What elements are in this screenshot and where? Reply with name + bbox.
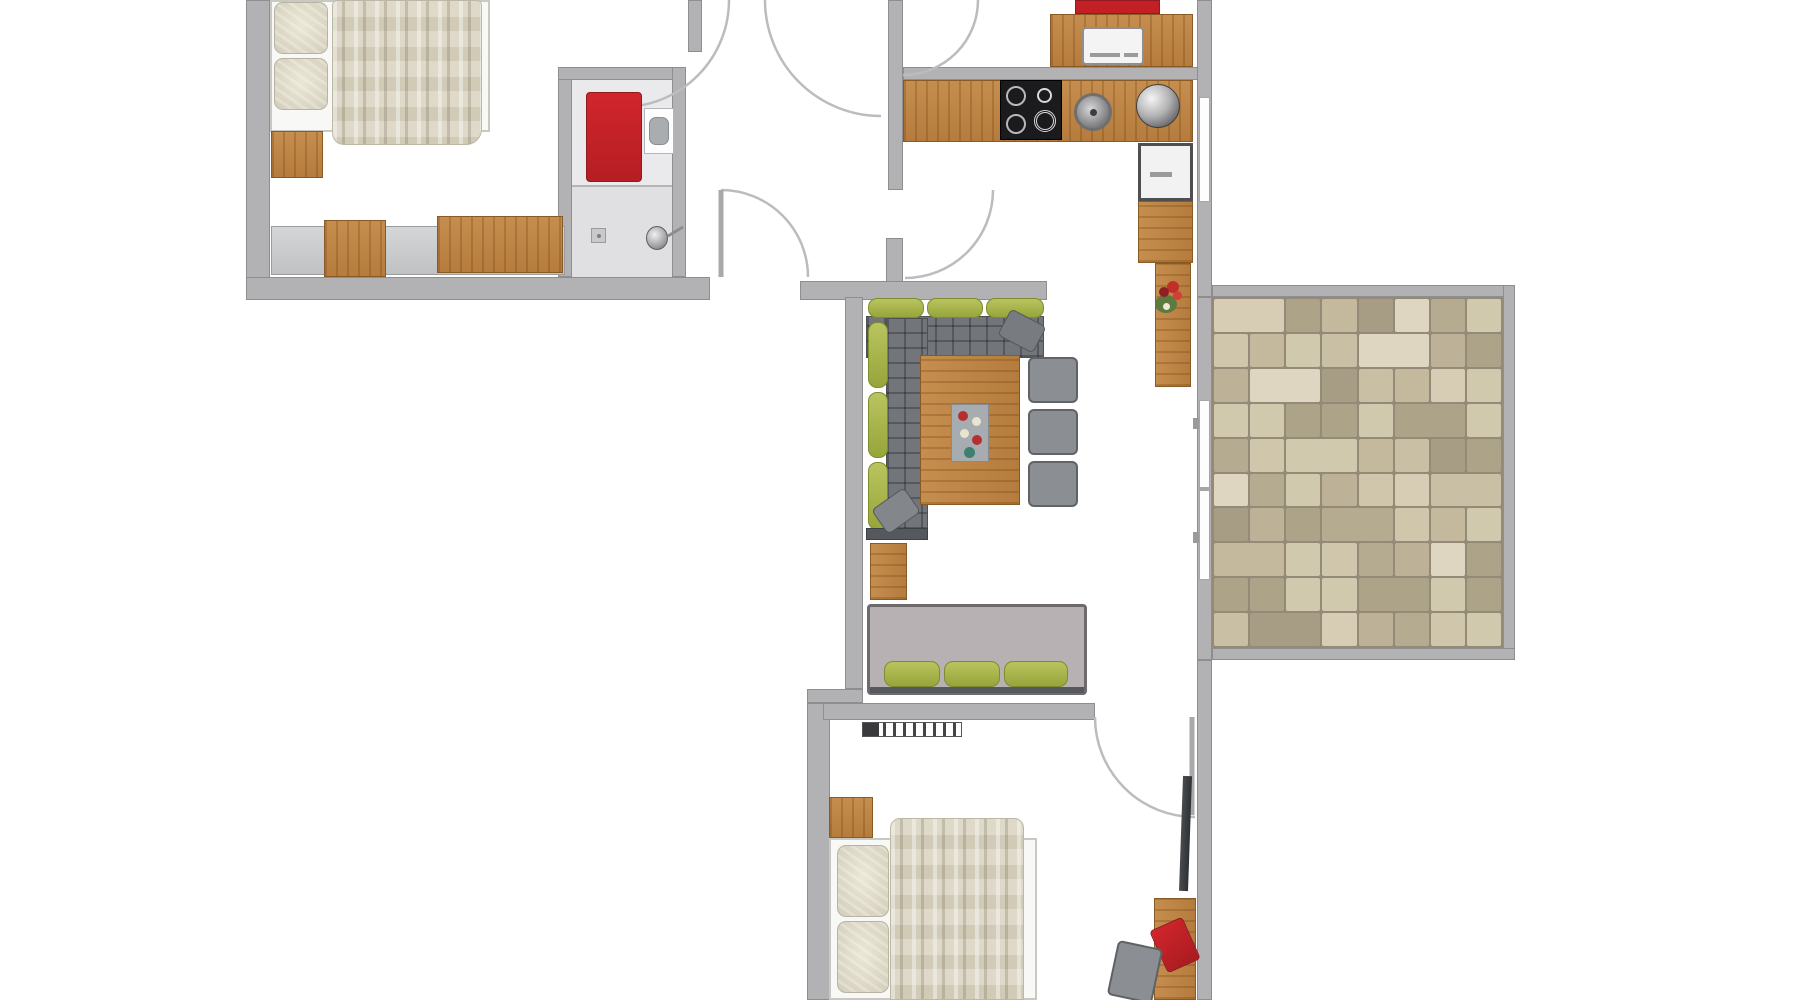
shower-head [646,226,668,250]
stone-tile [1214,508,1248,541]
wall-tv [1179,776,1192,891]
stone-tile [1467,334,1501,367]
wall-bedroom1-left [246,0,270,300]
bedroom2-pillow [837,845,889,917]
sliding-door-divider [1199,487,1210,491]
wall-right-lower [1197,660,1212,1000]
bedroom1-pillow [274,58,328,110]
bedroom2-duvet [890,818,1024,1000]
stone-tile [1431,369,1465,402]
stone-tile [1395,613,1429,646]
stone-tile [1250,613,1320,646]
stone-tile [1286,578,1320,611]
bedroom1-chair [324,220,386,277]
kitchen-counter-column [1138,201,1193,263]
wall-bedroom1-bottom [246,277,710,300]
wall-bedroom2-top [823,703,1095,720]
stone-tile [1431,543,1465,576]
stone-tile [1322,543,1356,576]
burner [1037,88,1052,103]
wall-jog [807,689,863,703]
kitchen-red-fridge [1075,0,1160,14]
dishwasher [1138,143,1193,201]
bedroom1-nightstand [271,131,323,178]
stone-tiles [1212,297,1503,648]
wall-kitchen-top [903,67,1212,80]
stone-tile [1359,474,1393,507]
flower-pot [1153,279,1189,317]
stone-tile [1250,404,1284,437]
stone-tile [1214,334,1248,367]
stone-tile [1359,543,1393,576]
sofa-cushion [868,322,888,388]
stone-tile [1214,439,1248,472]
stone-tile [1395,508,1429,541]
stone-tile [1214,299,1284,332]
stone-tile [1322,334,1356,367]
wall-hall-right-lower [886,238,903,283]
burner [1034,110,1056,132]
door-arc [903,0,978,75]
stone-tile [1214,474,1248,507]
sofa-cushion [944,661,1000,687]
stone-tile [1467,543,1501,576]
stone-tile [1395,474,1429,507]
stone-tile [1359,369,1393,402]
wall-bedroom2-left [807,703,830,1000]
door-handle [1193,418,1199,429]
bathroom-red-cabinet [586,92,642,182]
floor-plan [0,0,1800,1000]
sofa-cushion [868,298,924,318]
table-decoration [951,404,989,462]
stone-tile [1431,613,1465,646]
stone-tile [1359,299,1393,332]
stone-tile [1467,299,1501,332]
stone-tile [1431,439,1465,472]
stone-tile [1395,404,1465,437]
bedroom2-pillow [837,921,889,993]
stone-tile [1359,578,1429,611]
shower-drain [591,228,606,243]
stone-tile [1467,578,1501,611]
kitchen-window [1199,97,1210,202]
kitchen-sink [1074,93,1112,131]
bedroom1-pillow [274,2,328,54]
stone-tile [1467,508,1501,541]
stone-tile [1467,439,1501,472]
stone-tile [1214,613,1248,646]
sofa-cushion [1004,661,1068,687]
wall-bathroom-right [672,67,686,277]
dining-chair [1028,461,1078,507]
stone-tile [1431,299,1465,332]
stone-tile [1431,578,1465,611]
stone-tile [1467,369,1501,402]
stone-tile [1322,578,1356,611]
bedroom1-desk [437,216,563,273]
door-arc [905,190,993,278]
terrace-floor [1212,297,1503,648]
door-handle [1193,532,1199,543]
stone-tile [1322,474,1356,507]
burner [1006,114,1026,134]
stone-tile [1214,369,1248,402]
stone-tile [1395,369,1429,402]
corner-sofa-base [866,528,928,540]
bedroom2-nightstand [829,797,873,838]
toilet [644,108,674,154]
kitchen-pot [1136,84,1180,128]
cooktop [1000,80,1062,140]
stone-tile [1250,334,1284,367]
toilet-bowl [649,117,669,145]
wall-bathroom-top [558,67,686,80]
stone-tile [1214,404,1248,437]
wall-terrace-bottom [1212,648,1515,660]
stone-tile [1431,508,1465,541]
stone-tile [1359,613,1393,646]
stone-tile [1359,439,1393,472]
stone-tile [1250,578,1284,611]
kitchen-upper-appliance [1082,27,1144,65]
stone-tile [1286,508,1320,541]
stone-tile [1286,404,1320,437]
stone-tile [1395,439,1429,472]
door-arc [721,190,808,277]
sofa-cushion [868,392,888,458]
burner [1006,86,1026,106]
stone-tile [1467,613,1501,646]
dining-chair [1028,409,1078,455]
stone-tile [1322,613,1356,646]
stone-tile [1286,334,1320,367]
stone-tile [1467,404,1501,437]
stone-tile [1431,474,1501,507]
stone-tile [1250,474,1284,507]
radiator [862,722,962,737]
stone-tile [1322,508,1392,541]
sofa-cushion [927,298,983,318]
stone-tile [1286,474,1320,507]
door-arc [765,0,881,116]
living-cabinet [870,543,907,600]
stone-tile [1214,578,1248,611]
stone-tile [1322,369,1356,402]
stone-tile [1322,299,1356,332]
stone-tile [1286,299,1320,332]
stone-tile [1395,299,1429,332]
wall-living-left [845,297,863,689]
dining-chair [1028,357,1078,403]
stone-tile [1322,404,1356,437]
stone-tile [1359,404,1393,437]
stone-tile [1250,508,1284,541]
stone-tile [1431,334,1465,367]
loveseat [867,604,1087,695]
stone-tile [1250,369,1320,402]
sofa-cushion [884,661,940,687]
bedroom1-duvet [332,0,482,145]
stone-tile [1286,543,1320,576]
stone-tile [1395,543,1429,576]
door-arc [1095,717,1195,817]
wall-terrace-right [1503,285,1515,660]
stone-tile [1359,334,1429,367]
wall-terrace-top [1212,285,1515,297]
stone-tile [1214,543,1284,576]
wall-hall-stub [688,0,702,52]
stone-tile [1286,439,1356,472]
wall-hall-right-upper [888,0,903,190]
stone-tile [1250,439,1284,472]
